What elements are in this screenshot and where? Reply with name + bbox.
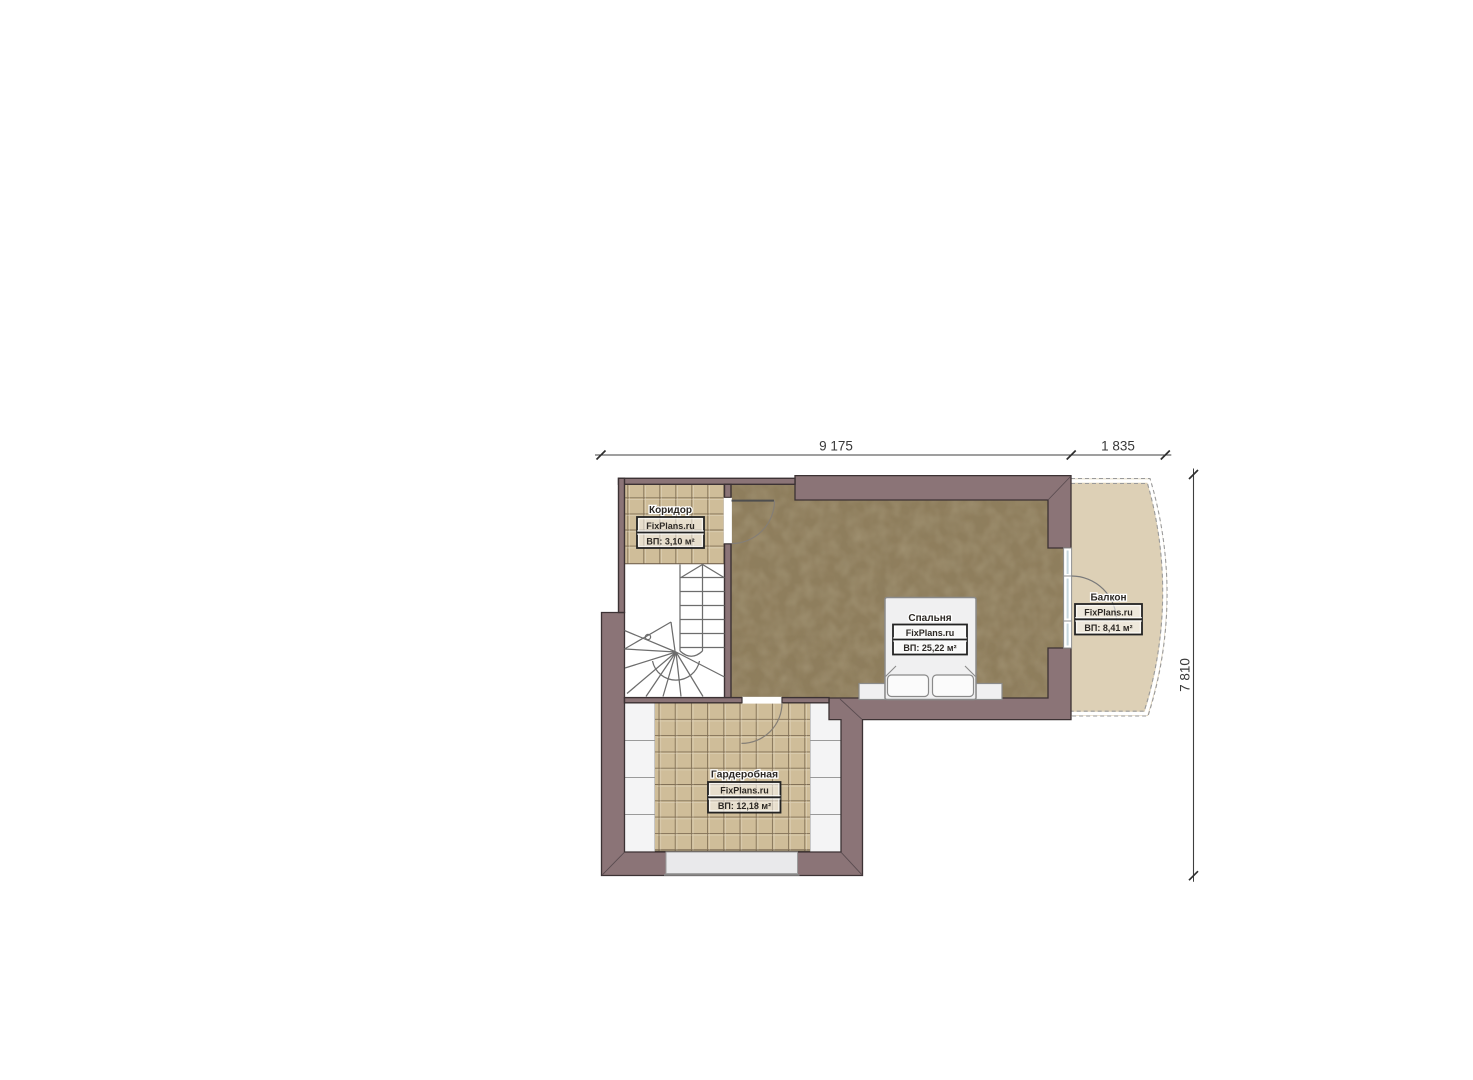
svg-text:ВП: 25,22 м²: ВП: 25,22 м² xyxy=(903,643,956,653)
svg-text:FixPlans.ru: FixPlans.ru xyxy=(1084,608,1133,618)
svg-text:Спальня: Спальня xyxy=(908,613,951,624)
svg-text:FixPlans.ru: FixPlans.ru xyxy=(646,521,695,531)
svg-text:Коридор: Коридор xyxy=(649,505,692,516)
svg-text:Гардеробная: Гардеробная xyxy=(711,769,778,781)
svg-text:FixPlans.ru: FixPlans.ru xyxy=(906,628,955,638)
svg-text:FixPlans.ru: FixPlans.ru xyxy=(720,786,769,796)
svg-text:Балкон: Балкон xyxy=(1090,593,1126,604)
svg-text:9 175: 9 175 xyxy=(819,439,853,454)
svg-text:ВП: 3,10 м²: ВП: 3,10 м² xyxy=(646,536,694,546)
svg-text:ВП: 8,41 м²: ВП: 8,41 м² xyxy=(1084,623,1132,633)
svg-text:7 810: 7 810 xyxy=(1178,658,1193,692)
svg-text:ВП: 12,18 м²: ВП: 12,18 м² xyxy=(718,801,771,811)
svg-text:1 835: 1 835 xyxy=(1101,439,1135,454)
